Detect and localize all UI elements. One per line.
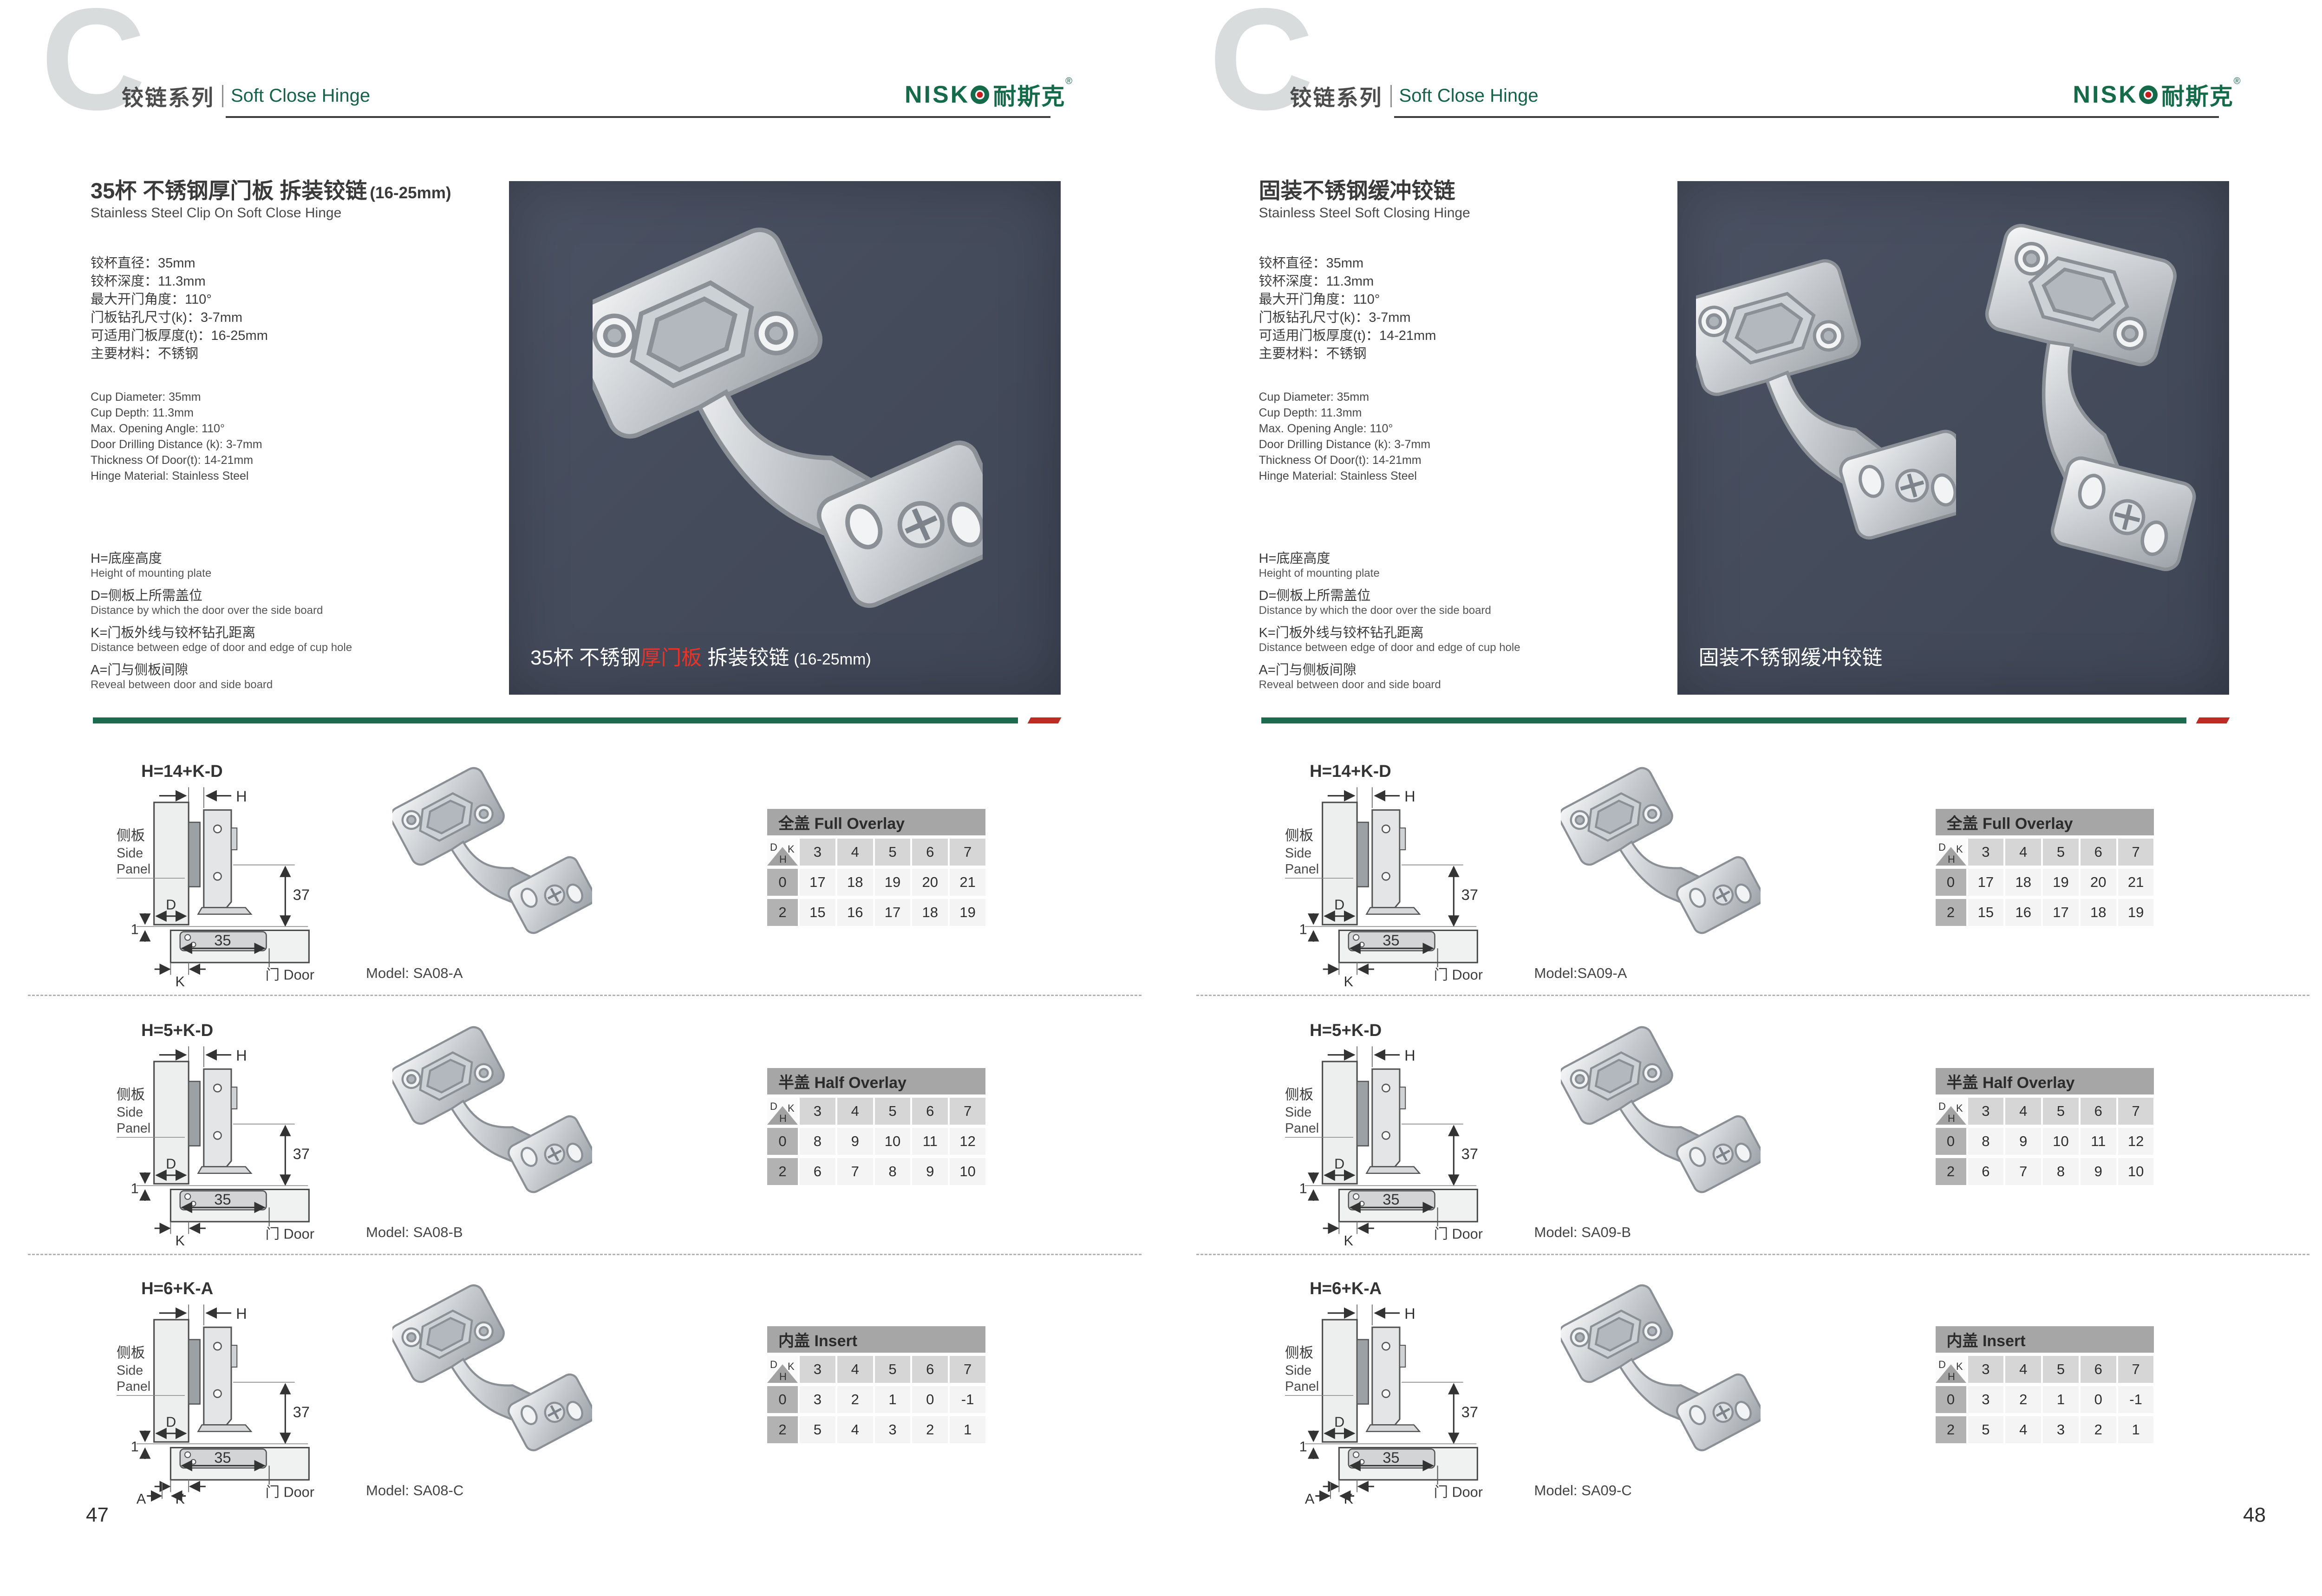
k-column-header: 3 xyxy=(1968,839,2004,866)
red-divider-accent xyxy=(1028,717,1062,723)
spec-line: Door Drilling Distance (k): 3-7mm xyxy=(91,436,262,452)
table-value: 20 xyxy=(912,869,948,896)
table-value: 2 xyxy=(2005,1386,2041,1413)
k-column-header: 6 xyxy=(912,1098,948,1125)
hinge-product-image xyxy=(392,760,592,964)
mounting-formula: H=5+K-D xyxy=(1310,1021,1382,1040)
table-value: 1 xyxy=(950,1416,985,1443)
k-column-header: 7 xyxy=(950,1356,985,1383)
k-column-header: 3 xyxy=(1968,1098,2004,1125)
svg-text:K: K xyxy=(788,1102,795,1114)
dim-35-label: 35 xyxy=(214,1449,231,1466)
table-value: 8 xyxy=(1968,1128,2004,1155)
dim-h-label: H xyxy=(1404,1305,1415,1322)
table-row: 0 17 18 19 20 21 xyxy=(1936,869,2154,896)
table-value: 19 xyxy=(2118,899,2154,926)
dim-d-label: D xyxy=(1334,897,1344,913)
k-column-header: 6 xyxy=(912,839,948,866)
table-value: 2 xyxy=(912,1416,948,1443)
table-title: 半盖 Half Overlay xyxy=(1936,1068,2154,1094)
spec-line: 最大开门角度：110° xyxy=(91,291,268,309)
svg-text:Panel: Panel xyxy=(117,1379,150,1394)
mounting-plate-shape xyxy=(1357,822,1368,887)
table-value: 19 xyxy=(950,899,985,926)
dim-35-label: 35 xyxy=(214,1191,231,1208)
green-divider xyxy=(93,717,1018,723)
specs-chinese: 铰杯直径：35mm 铰杯深度：11.3mm 最大开门角度：110° 门板钻孔尺寸… xyxy=(91,254,268,363)
table-title: 内盖 Insert xyxy=(1936,1326,2154,1353)
model-number: Model: SA08-C xyxy=(366,1482,463,1499)
table-value: 1 xyxy=(875,1386,911,1413)
overlay-table: 全盖 Full Overlay D K H 3 4 5 6 7 xyxy=(1936,809,2154,926)
door-label: 门 Door xyxy=(1434,1226,1482,1242)
k-column-header: 7 xyxy=(950,1098,985,1125)
dim-1-label: 1 xyxy=(1299,922,1307,938)
k-column-header: 3 xyxy=(800,1356,835,1383)
h-row-header: 0 xyxy=(767,1128,798,1155)
table-value: 18 xyxy=(2081,899,2116,926)
dim-35-label: 35 xyxy=(1383,1191,1399,1208)
spec-line: Cup Depth: 11.3mm xyxy=(91,405,262,421)
mounting-plate-shape xyxy=(1357,1081,1368,1146)
model-number: Model: SA09-B xyxy=(1534,1224,1631,1241)
spec-line: Max. Opening Angle: 110° xyxy=(1259,421,1431,436)
product-title: 固装不锈钢缓冲铰链 xyxy=(1259,173,1458,205)
mounting-formula: H=6+K-A xyxy=(1310,1279,1382,1298)
svg-text:Side: Side xyxy=(117,1105,143,1120)
hinge-product-image xyxy=(1561,1019,1761,1223)
model-number: Model:SA09-A xyxy=(1534,965,1627,982)
dim-d-label: D xyxy=(1334,1156,1344,1172)
table-value: 17 xyxy=(2043,899,2079,926)
series-header: 铰链系列 Soft Close Hinge xyxy=(1290,80,1539,112)
red-divider-accent xyxy=(2196,717,2230,723)
spec-line: Door Drilling Distance (k): 3-7mm xyxy=(1259,436,1431,452)
dim-k-label: K xyxy=(176,1233,185,1248)
series-title-cn: 铰链系列 xyxy=(122,80,215,112)
product-title: 35杯 不锈钢厚门板 拆装铰链(16-25mm) xyxy=(91,173,451,205)
table-value: 2 xyxy=(2081,1416,2116,1443)
k-column-header: 5 xyxy=(875,839,911,866)
mounting-plate-shape xyxy=(189,822,200,887)
overlay-table: 半盖 Half Overlay D K H 3 4 5 6 7 xyxy=(767,1068,985,1185)
table-value: 1 xyxy=(2043,1386,2079,1413)
table-corner-cell: D K H xyxy=(1936,839,1966,866)
specs-chinese: 铰杯直径：35mm 铰杯深度：11.3mm 最大开门角度：110° 门板钻孔尺寸… xyxy=(1259,254,1436,363)
header-rule xyxy=(226,116,1050,118)
door-label: 门 Door xyxy=(1434,967,1482,983)
door-label: 门 Door xyxy=(1434,1485,1482,1500)
table-value: 3 xyxy=(2043,1416,2079,1443)
spec-line: Cup Diameter: 35mm xyxy=(1259,389,1431,405)
mounting-formula: H=6+K-A xyxy=(141,1279,213,1298)
legend: H=底座高度Height of mounting plate D=侧板上所需盖位… xyxy=(91,551,352,699)
dim-37-label: 37 xyxy=(293,886,310,903)
table-value: 3 xyxy=(800,1386,835,1413)
table-row: 0 8 9 10 11 12 xyxy=(1936,1128,2154,1155)
series-title-en: Soft Close Hinge xyxy=(1399,85,1539,106)
series-letter-watermark: C xyxy=(1209,0,1314,132)
product-section: H=5+K-D H 侧板 Side Panel 37 1 D xyxy=(0,1016,1168,1251)
installation-diagram: H=5+K-D H 侧板 Side Panel 37 1 D xyxy=(1272,1016,1506,1248)
table-value: 0 xyxy=(2081,1386,2116,1413)
spec-line: Max. Opening Angle: 110° xyxy=(91,421,262,436)
product-photo: 固装不锈钢缓冲铰链 xyxy=(1677,181,2229,695)
product-photo: 35杯 不锈钢厚门板 拆装铰链(16-25mm) xyxy=(509,181,1061,695)
door-label: 门 Door xyxy=(265,1485,314,1500)
svg-text:K: K xyxy=(788,843,795,855)
table-value: 21 xyxy=(950,869,985,896)
table-corner-cell: D K H xyxy=(767,1356,798,1383)
table-value: 1 xyxy=(2118,1416,2154,1443)
k-column-header: 3 xyxy=(800,839,835,866)
dim-35-label: 35 xyxy=(1383,1449,1399,1466)
table-row: 2 15 16 17 18 19 xyxy=(767,899,985,926)
table-value: 17 xyxy=(1968,869,2004,896)
table-value: 5 xyxy=(800,1416,835,1443)
mounting-formula: H=14+K-D xyxy=(141,762,223,781)
table-value: 11 xyxy=(912,1128,948,1155)
k-column-header: 3 xyxy=(800,1098,835,1125)
svg-text:Panel: Panel xyxy=(1285,1121,1319,1136)
table-value: 19 xyxy=(2043,869,2079,896)
spec-line: 可适用门板厚度(t)：16-25mm xyxy=(91,327,268,345)
h-row-header: 0 xyxy=(767,1386,798,1413)
svg-text:Side: Side xyxy=(117,846,143,860)
table-value: 6 xyxy=(1968,1158,2004,1185)
dim-k-label: K xyxy=(176,974,185,989)
spec-line: 门板钻孔尺寸(k)：3-7mm xyxy=(91,309,268,327)
table-row: 2 15 16 17 18 19 xyxy=(1936,899,2154,926)
mounting-plate-shape xyxy=(1357,1340,1368,1404)
svg-text:Panel: Panel xyxy=(117,862,150,877)
dim-35-label: 35 xyxy=(214,932,231,949)
h-row-header: 2 xyxy=(1936,1158,1966,1185)
series-title-cn: 铰链系列 xyxy=(1290,80,1383,112)
table-row: 2 5 4 3 2 1 xyxy=(767,1416,985,1443)
overlay-table: 全盖 Full Overlay D K H 3 4 5 6 7 xyxy=(767,809,985,926)
catalog-spread: C 铰链系列 Soft Close Hinge NISK 耐斯克 ® 35杯 不… xyxy=(0,0,2322,1596)
side-panel-label-cn: 侧板 xyxy=(117,828,145,844)
hinge-photo-illustration xyxy=(1696,251,1956,576)
specs-english: Cup Diameter: 35mm Cup Depth: 11.3mm Max… xyxy=(91,389,262,484)
catalog-page-right: C 铰链系列 Soft Close Hinge NISK 耐斯克 ® 固装不锈钢… xyxy=(1168,0,2322,1596)
k-column-header: 4 xyxy=(837,1356,873,1383)
legend: H=底座高度Height of mounting plate D=侧板上所需盖位… xyxy=(1259,551,1520,699)
dim-37-label: 37 xyxy=(293,1403,310,1420)
table-corner-cell: D K H xyxy=(1936,1098,1966,1125)
svg-text:K: K xyxy=(1956,843,1963,855)
k-column-header: 4 xyxy=(837,839,873,866)
table-value: 19 xyxy=(875,869,911,896)
table-row: 0 3 2 1 0 -1 xyxy=(767,1386,985,1413)
dim-d-label: D xyxy=(166,1156,176,1172)
table-value: 17 xyxy=(875,899,911,926)
spec-line: 铰杯直径：35mm xyxy=(91,254,268,273)
dim-h-label: H xyxy=(236,1305,247,1322)
h-row-header: 0 xyxy=(1936,1386,1966,1413)
svg-text:Side: Side xyxy=(1285,1363,1311,1378)
table-value: 21 xyxy=(2118,869,2154,896)
dim-h-label: H xyxy=(236,1047,247,1064)
installation-diagram: H=6+K-A H 侧板 Side Panel 37 1 D xyxy=(103,1274,338,1506)
k-column-header: 3 xyxy=(1968,1356,2004,1383)
spec-line: 铰杯深度：11.3mm xyxy=(91,273,268,291)
svg-text:H: H xyxy=(1948,1371,1955,1382)
dim-1-label: 1 xyxy=(131,1439,139,1455)
installation-diagram: H=14+K-D H 侧板 Side Panel 37 1 D xyxy=(103,757,338,989)
product-section: H=14+K-D H 侧板 Side Panel 37 1 D xyxy=(1168,757,2322,991)
registered-mark: ® xyxy=(1065,76,1072,87)
h-row-header: 2 xyxy=(767,899,798,926)
divider xyxy=(1390,85,1392,107)
dim-1-label: 1 xyxy=(131,922,139,938)
dim-1-label: 1 xyxy=(131,1181,139,1197)
h-row-header: 0 xyxy=(1936,1128,1966,1155)
table-value: 12 xyxy=(950,1128,985,1155)
svg-text:D: D xyxy=(770,1101,777,1112)
side-panel-label-cn: 侧板 xyxy=(1285,1345,1313,1361)
product-section: H=5+K-D H 侧板 Side Panel 37 1 D xyxy=(1168,1016,2322,1251)
k-column-header: 7 xyxy=(2118,1098,2154,1125)
svg-text:Panel: Panel xyxy=(1285,862,1319,877)
dim-37-label: 37 xyxy=(1461,1403,1478,1420)
svg-text:Panel: Panel xyxy=(1285,1379,1319,1394)
dim-d-label: D xyxy=(1334,1414,1344,1430)
k-column-header: 5 xyxy=(2043,1098,2079,1125)
spec-line: 可适用门板厚度(t)：14-21mm xyxy=(1259,327,1436,345)
spec-line: Hinge Material: Stainless Steel xyxy=(91,468,262,484)
table-value: 11 xyxy=(2081,1128,2116,1155)
installation-diagram: H=6+K-A H 侧板 Side Panel 37 1 D xyxy=(1272,1274,1506,1506)
svg-text:K: K xyxy=(1956,1361,1963,1372)
dim-k-label: K xyxy=(176,1491,185,1506)
k-column-header: 6 xyxy=(2081,1098,2116,1125)
svg-text:H: H xyxy=(779,1371,787,1382)
model-number: Model: SA08-B xyxy=(366,1224,463,1241)
series-letter-watermark: C xyxy=(41,0,145,132)
hinge-product-image xyxy=(392,1277,592,1481)
table-value: -1 xyxy=(950,1386,985,1413)
mounting-formula: H=14+K-D xyxy=(1310,762,1391,781)
photo-caption: 35杯 不锈钢厚门板 拆装铰链(16-25mm) xyxy=(530,641,871,671)
table-value: 16 xyxy=(2005,899,2041,926)
table-value: 17 xyxy=(800,869,835,896)
dim-k-label: K xyxy=(1344,1491,1353,1506)
mounting-plate-shape xyxy=(189,1340,200,1404)
k-column-header: 4 xyxy=(2005,1098,2041,1125)
spec-line: Cup Diameter: 35mm xyxy=(91,389,262,405)
h-row-header: 2 xyxy=(767,1416,798,1443)
overlay-table: 内盖 Insert D K H 3 4 5 6 7 0 xyxy=(767,1326,985,1443)
k-column-header: 5 xyxy=(875,1098,911,1125)
k-column-header: 7 xyxy=(2118,839,2154,866)
mounting-formula: H=5+K-D xyxy=(141,1021,213,1040)
table-title: 内盖 Insert xyxy=(767,1326,985,1353)
table-title: 全盖 Full Overlay xyxy=(1936,809,2154,835)
nisko-logo: NISK 耐斯克 ® xyxy=(2073,78,2241,111)
dim-a-label: A xyxy=(137,1491,146,1506)
table-value: 6 xyxy=(800,1158,835,1185)
dim-1-label: 1 xyxy=(1299,1181,1307,1197)
overlay-table: 半盖 Half Overlay D K H 3 4 5 6 7 xyxy=(1936,1068,2154,1185)
sections-container: H=14+K-D H 侧板 Side Panel 37 1 D xyxy=(1168,757,2322,1518)
svg-text:D: D xyxy=(1938,1359,1946,1370)
h-row-header: 2 xyxy=(1936,899,1966,926)
spec-line: 铰杯直径：35mm xyxy=(1259,254,1436,273)
table-value: 5 xyxy=(1968,1416,2004,1443)
mounting-plate-shape xyxy=(189,1081,200,1146)
table-value: 9 xyxy=(2005,1128,2041,1155)
k-column-header: 5 xyxy=(2043,839,2079,866)
hinge-product-image xyxy=(1561,1277,1761,1481)
dim-h-label: H xyxy=(1404,1047,1415,1064)
spec-line: 门板钻孔尺寸(k)：3-7mm xyxy=(1259,309,1436,327)
side-panel-label-cn: 侧板 xyxy=(1285,828,1313,844)
photo-caption: 固装不锈钢缓冲铰链 xyxy=(1699,641,1887,671)
table-value: 4 xyxy=(2005,1416,2041,1443)
table-value: 18 xyxy=(837,869,873,896)
specs-english: Cup Diameter: 35mm Cup Depth: 11.3mm Max… xyxy=(1259,389,1431,484)
side-panel-label-cn: 侧板 xyxy=(1285,1087,1313,1103)
k-column-header: 7 xyxy=(2118,1356,2154,1383)
header-rule xyxy=(1394,116,2219,118)
logo-red-dot-icon xyxy=(2145,92,2151,98)
side-panel-label-cn: 侧板 xyxy=(117,1087,145,1103)
svg-text:K: K xyxy=(788,1361,795,1372)
svg-text:Side: Side xyxy=(117,1363,143,1378)
product-subtitle: Stainless Steel Clip On Soft Close Hinge xyxy=(91,205,341,221)
table-value: 7 xyxy=(2005,1158,2041,1185)
k-column-header: 5 xyxy=(875,1356,911,1383)
dim-a-label: A xyxy=(1304,1491,1314,1506)
green-divider xyxy=(1261,717,2186,723)
model-number: Model: SA08-A xyxy=(366,965,463,982)
product-section: H=14+K-D H 侧板 Side Panel 37 1 D xyxy=(0,757,1168,991)
page-number: 47 xyxy=(86,1504,109,1527)
spec-line: Hinge Material: Stainless Steel xyxy=(1259,468,1431,484)
table-row: 0 17 18 19 20 21 xyxy=(767,869,985,896)
model-number: Model: SA09-C xyxy=(1534,1482,1632,1499)
svg-text:K: K xyxy=(1956,1102,1963,1114)
logo-o-icon xyxy=(2139,85,2158,104)
registered-mark: ® xyxy=(2234,76,2241,87)
table-value: 8 xyxy=(2043,1158,2079,1185)
dim-h-label: H xyxy=(1404,788,1415,805)
table-value: 18 xyxy=(912,899,948,926)
spec-line: 铰杯深度：11.3mm xyxy=(1259,273,1436,291)
installation-diagram: H=5+K-D H 侧板 Side Panel 37 1 D xyxy=(103,1016,338,1248)
logo-o-icon xyxy=(971,85,989,104)
table-value: 7 xyxy=(837,1158,873,1185)
k-column-header: 7 xyxy=(950,839,985,866)
table-value: 15 xyxy=(1968,899,2004,926)
spec-line: Cup Depth: 11.3mm xyxy=(1259,405,1431,421)
svg-text:D: D xyxy=(1938,1101,1946,1112)
svg-text:D: D xyxy=(770,1359,777,1370)
table-value: 12 xyxy=(2118,1128,2154,1155)
table-value: -1 xyxy=(2118,1386,2154,1413)
dim-37-label: 37 xyxy=(1461,886,1478,903)
table-value: 9 xyxy=(837,1128,873,1155)
dim-1-label: 1 xyxy=(1299,1439,1307,1455)
table-row: 2 5 4 3 2 1 xyxy=(1936,1416,2154,1443)
table-value: 15 xyxy=(800,899,835,926)
svg-text:D: D xyxy=(770,841,777,853)
hinge-product-image xyxy=(1561,760,1761,964)
hinge-photo-illustration xyxy=(593,214,983,669)
k-column-header: 6 xyxy=(2081,839,2116,866)
dim-d-label: D xyxy=(166,897,176,913)
svg-text:D: D xyxy=(1938,841,1946,853)
k-column-header: 4 xyxy=(2005,839,2041,866)
hinge-product-image xyxy=(392,1019,592,1223)
table-row: 0 8 9 10 11 12 xyxy=(767,1128,985,1155)
table-value: 9 xyxy=(2081,1158,2116,1185)
table-value: 3 xyxy=(875,1416,911,1443)
h-row-header: 0 xyxy=(1936,869,1966,896)
svg-text:H: H xyxy=(1948,1113,1955,1124)
nisko-logo: NISK 耐斯克 ® xyxy=(905,78,1072,111)
k-column-header: 4 xyxy=(837,1098,873,1125)
svg-text:Side: Side xyxy=(1285,846,1311,860)
spec-line: 主要材料：不锈钢 xyxy=(1259,345,1436,363)
divider xyxy=(222,85,223,107)
table-row: 0 3 2 1 0 -1 xyxy=(1936,1386,2154,1413)
svg-text:H: H xyxy=(779,1113,787,1124)
table-value: 10 xyxy=(875,1128,911,1155)
spec-line: Thickness Of Door(t): 14-21mm xyxy=(91,452,262,468)
svg-text:H: H xyxy=(1948,853,1955,865)
k-column-header: 4 xyxy=(2005,1356,2041,1383)
svg-text:Side: Side xyxy=(1285,1105,1311,1120)
door-label: 门 Door xyxy=(265,1226,314,1242)
table-value: 18 xyxy=(2005,869,2041,896)
table-title: 半盖 Half Overlay xyxy=(767,1068,985,1094)
sections-container: H=14+K-D H 侧板 Side Panel 37 1 D xyxy=(0,757,1168,1518)
product-section: H=6+K-A H 侧板 Side Panel 37 1 D xyxy=(1168,1274,2322,1509)
table-row: 2 6 7 8 9 10 xyxy=(1936,1158,2154,1185)
series-title-en: Soft Close Hinge xyxy=(231,85,370,106)
k-column-header: 6 xyxy=(912,1356,948,1383)
series-header: 铰链系列 Soft Close Hinge xyxy=(122,80,370,112)
table-corner-cell: D K H xyxy=(767,839,798,866)
installation-diagram: H=14+K-D H 侧板 Side Panel 37 1 D xyxy=(1272,757,1506,989)
page-number: 48 xyxy=(2243,1504,2266,1527)
svg-text:H: H xyxy=(779,853,787,865)
h-row-header: 2 xyxy=(1936,1416,1966,1443)
dim-k-label: K xyxy=(1344,1233,1353,1248)
spec-line: Thickness Of Door(t): 14-21mm xyxy=(1259,452,1431,468)
table-value: 9 xyxy=(912,1158,948,1185)
table-value: 4 xyxy=(837,1416,873,1443)
table-value: 3 xyxy=(1968,1386,2004,1413)
hinge-photo-illustration xyxy=(1947,209,2225,599)
dim-35-label: 35 xyxy=(1383,932,1399,949)
table-value: 2 xyxy=(837,1386,873,1413)
dim-d-label: D xyxy=(166,1414,176,1430)
door-label: 门 Door xyxy=(265,967,314,983)
side-panel-label-cn: 侧板 xyxy=(117,1345,145,1361)
product-section: H=6+K-A H 侧板 Side Panel 37 1 D xyxy=(0,1274,1168,1509)
table-value: 10 xyxy=(950,1158,985,1185)
table-title: 全盖 Full Overlay xyxy=(767,809,985,835)
h-row-header: 0 xyxy=(767,869,798,896)
dim-k-label: K xyxy=(1344,974,1353,989)
table-value: 10 xyxy=(2043,1128,2079,1155)
spec-line: 主要材料：不锈钢 xyxy=(91,345,268,363)
dim-37-label: 37 xyxy=(1461,1145,1478,1162)
